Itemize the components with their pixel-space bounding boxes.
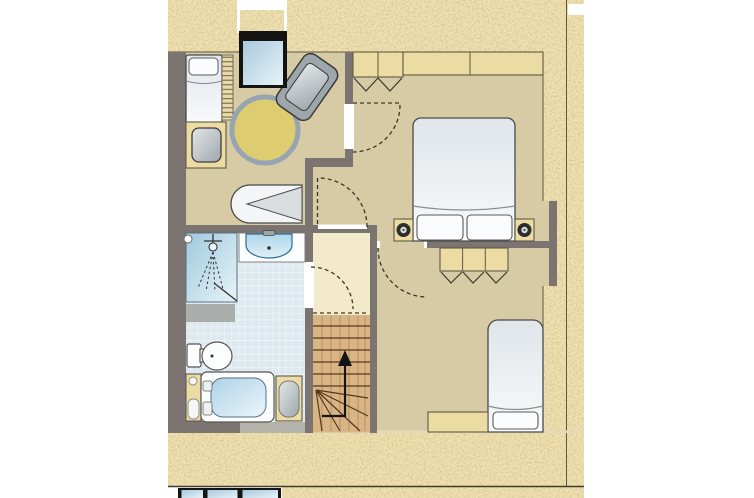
basin-tap-icon (263, 231, 275, 236)
wall-east (549, 201, 557, 286)
dresser-with-stool (186, 122, 226, 168)
lower-plan-windows (178, 488, 281, 498)
lounge-chair (231, 185, 302, 223)
dormer-side (284, 0, 287, 33)
toilet (187, 342, 232, 370)
dormer-side (237, 0, 240, 33)
pillow (189, 58, 218, 75)
window-pane (182, 490, 204, 498)
wall-south (168, 421, 240, 433)
single-bed (488, 320, 543, 432)
wall-vestibule-west (305, 167, 313, 225)
roof-texture-bottom (168, 433, 584, 487)
nightstand-left (394, 219, 413, 241)
bathtub (201, 372, 274, 422)
window-pane (208, 490, 238, 498)
washbasin (246, 234, 292, 258)
roof-notch (568, 4, 584, 15)
doorway-jamb (377, 241, 380, 248)
shelf-item (188, 399, 199, 419)
ladder-rack (222, 55, 233, 120)
shower-valve-icon (184, 235, 192, 243)
window-pane (243, 490, 279, 498)
doorway-jamb (424, 241, 427, 248)
duct-block (186, 304, 235, 322)
shelf-item (189, 377, 197, 385)
wardrobe-long (403, 52, 543, 75)
floor-plan-canvas (0, 0, 754, 498)
double-bed (413, 118, 515, 241)
floor-plan-drawing (0, 0, 754, 498)
wall-stairs-east (370, 233, 377, 433)
single-bed (186, 55, 222, 123)
stool (192, 128, 221, 162)
window-glass (243, 41, 283, 85)
roof-texture-right-lower (543, 286, 566, 433)
wall-south-light (240, 422, 305, 433)
tub-tap-icon (203, 402, 212, 415)
roof-texture-right-mid (557, 201, 566, 286)
dormer-recess (238, 0, 287, 10)
roof-texture-top (168, 0, 584, 52)
doorway-bedrooms (344, 104, 354, 149)
laundry-basket (279, 381, 299, 417)
landing-floor (313, 233, 370, 315)
pillow (493, 412, 538, 429)
wall-bed-head (427, 241, 557, 248)
wall-jog (305, 158, 353, 167)
nightstand-right (515, 219, 534, 241)
desk (428, 412, 488, 432)
doorway-bathroom (304, 262, 314, 308)
roof-texture-right-upper (543, 52, 566, 201)
doorway-vestibule (318, 225, 367, 230)
wall-west (168, 52, 186, 433)
tub-tap-icon (203, 381, 212, 391)
pillow (417, 215, 463, 240)
wall-bedrooms-upper (345, 52, 353, 105)
roof-texture-lower-plan (282, 487, 584, 498)
basin-drain-icon (267, 246, 271, 250)
pillow (467, 215, 512, 240)
roof-texture-outer-strip (567, 52, 584, 487)
